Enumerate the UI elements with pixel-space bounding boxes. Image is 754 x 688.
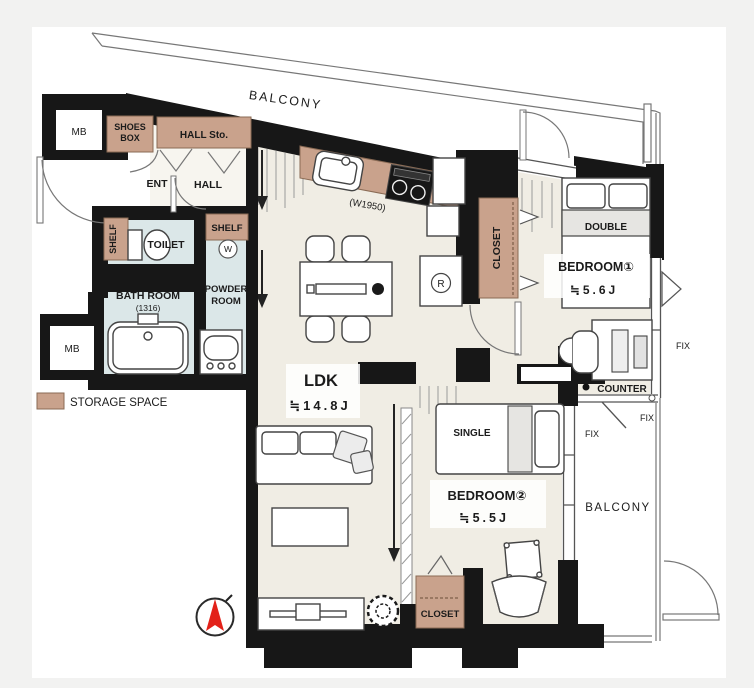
shelf-label: SHELF (108, 224, 118, 254)
bathroom-size: (1316) (136, 303, 161, 313)
bathroom-label: BATH ROOM (116, 290, 180, 302)
sliding-partition (401, 408, 412, 606)
shoes-box-label: SHOES (114, 122, 146, 132)
coffee-table (272, 508, 348, 546)
kitchen-cabinet (427, 206, 459, 236)
svg-text:BOX: BOX (120, 133, 140, 143)
dining-chair (306, 236, 334, 262)
office-chair-icon (572, 331, 598, 373)
meter-box-label: MB (65, 344, 80, 355)
ldk-size: ≒14.8J (289, 398, 350, 413)
pillow (609, 184, 647, 208)
meter-box-label: MB (72, 127, 87, 138)
dining-chair (342, 316, 370, 342)
balcony-right-label: BALCONY (585, 502, 650, 514)
toilet-label: TOILET (147, 239, 185, 251)
fix-window-label: FIX (640, 413, 654, 423)
washer-symbol: W (224, 244, 232, 254)
dining-chair (342, 236, 370, 262)
double-bed-label: DOUBLE (585, 222, 628, 233)
bedroom1-size: ≒5.6J (570, 283, 618, 297)
floor-plan-page: STORAGE SPACE BALCONY BALCONY MB MB SHOE… (0, 0, 754, 688)
floor-plan-drawing: STORAGE SPACE BALCONY BALCONY MB MB SHOE… (0, 0, 754, 688)
single-bed-band (508, 406, 532, 472)
bedroom1-sliding-opening (521, 367, 571, 381)
hall-label: HALL (194, 179, 223, 191)
balcony-window-door-leaf (520, 110, 526, 160)
pc-icon (634, 336, 647, 368)
legend-swatch (37, 393, 64, 409)
bath-controls (138, 314, 158, 324)
bedroom-door-leaf (515, 302, 521, 355)
shelf-label: SHELF (211, 223, 242, 234)
stove (386, 165, 435, 206)
table-plant-icon (372, 283, 384, 295)
balcony-partition (644, 104, 651, 162)
pillow (567, 184, 605, 208)
entrance-label: ENT (147, 178, 169, 190)
balcony-door-leaf (663, 614, 719, 620)
ldk-label: LDK (304, 372, 338, 390)
plant-icon (368, 596, 398, 626)
counter-label: COUNTER (597, 384, 647, 395)
svg-text:ROOM: ROOM (211, 296, 241, 307)
fix-window-label: FIX (676, 341, 690, 351)
monitor-icon (612, 330, 628, 372)
refrigerator-symbol: R (437, 279, 444, 290)
fix-window-label: FIX (585, 429, 599, 439)
kitchen-cabinet (433, 158, 465, 204)
pillow (535, 411, 559, 467)
sofa-pillow (350, 450, 374, 474)
side-table (504, 540, 542, 580)
toilet-tank (128, 230, 142, 260)
legend-label: STORAGE SPACE (70, 397, 168, 409)
faucet-icon (341, 157, 350, 166)
bedroom1-label: BEDROOM① (558, 260, 634, 274)
powder-room-label: POWDER (205, 284, 248, 295)
bedroom2-label: BEDROOM② (448, 488, 527, 503)
closet-label: CLOSET (421, 609, 460, 620)
closet-label: CLOSET (491, 226, 503, 269)
single-bed-label: SINGLE (453, 428, 491, 439)
hall-storage-label: HALL Sto. (180, 130, 228, 141)
closet-bedroom2 (416, 576, 464, 628)
counter-marker-dot (583, 384, 590, 391)
dining-chair (306, 316, 334, 342)
bedroom2-size: ≒5.5J (459, 511, 509, 525)
table-tray (316, 284, 366, 294)
